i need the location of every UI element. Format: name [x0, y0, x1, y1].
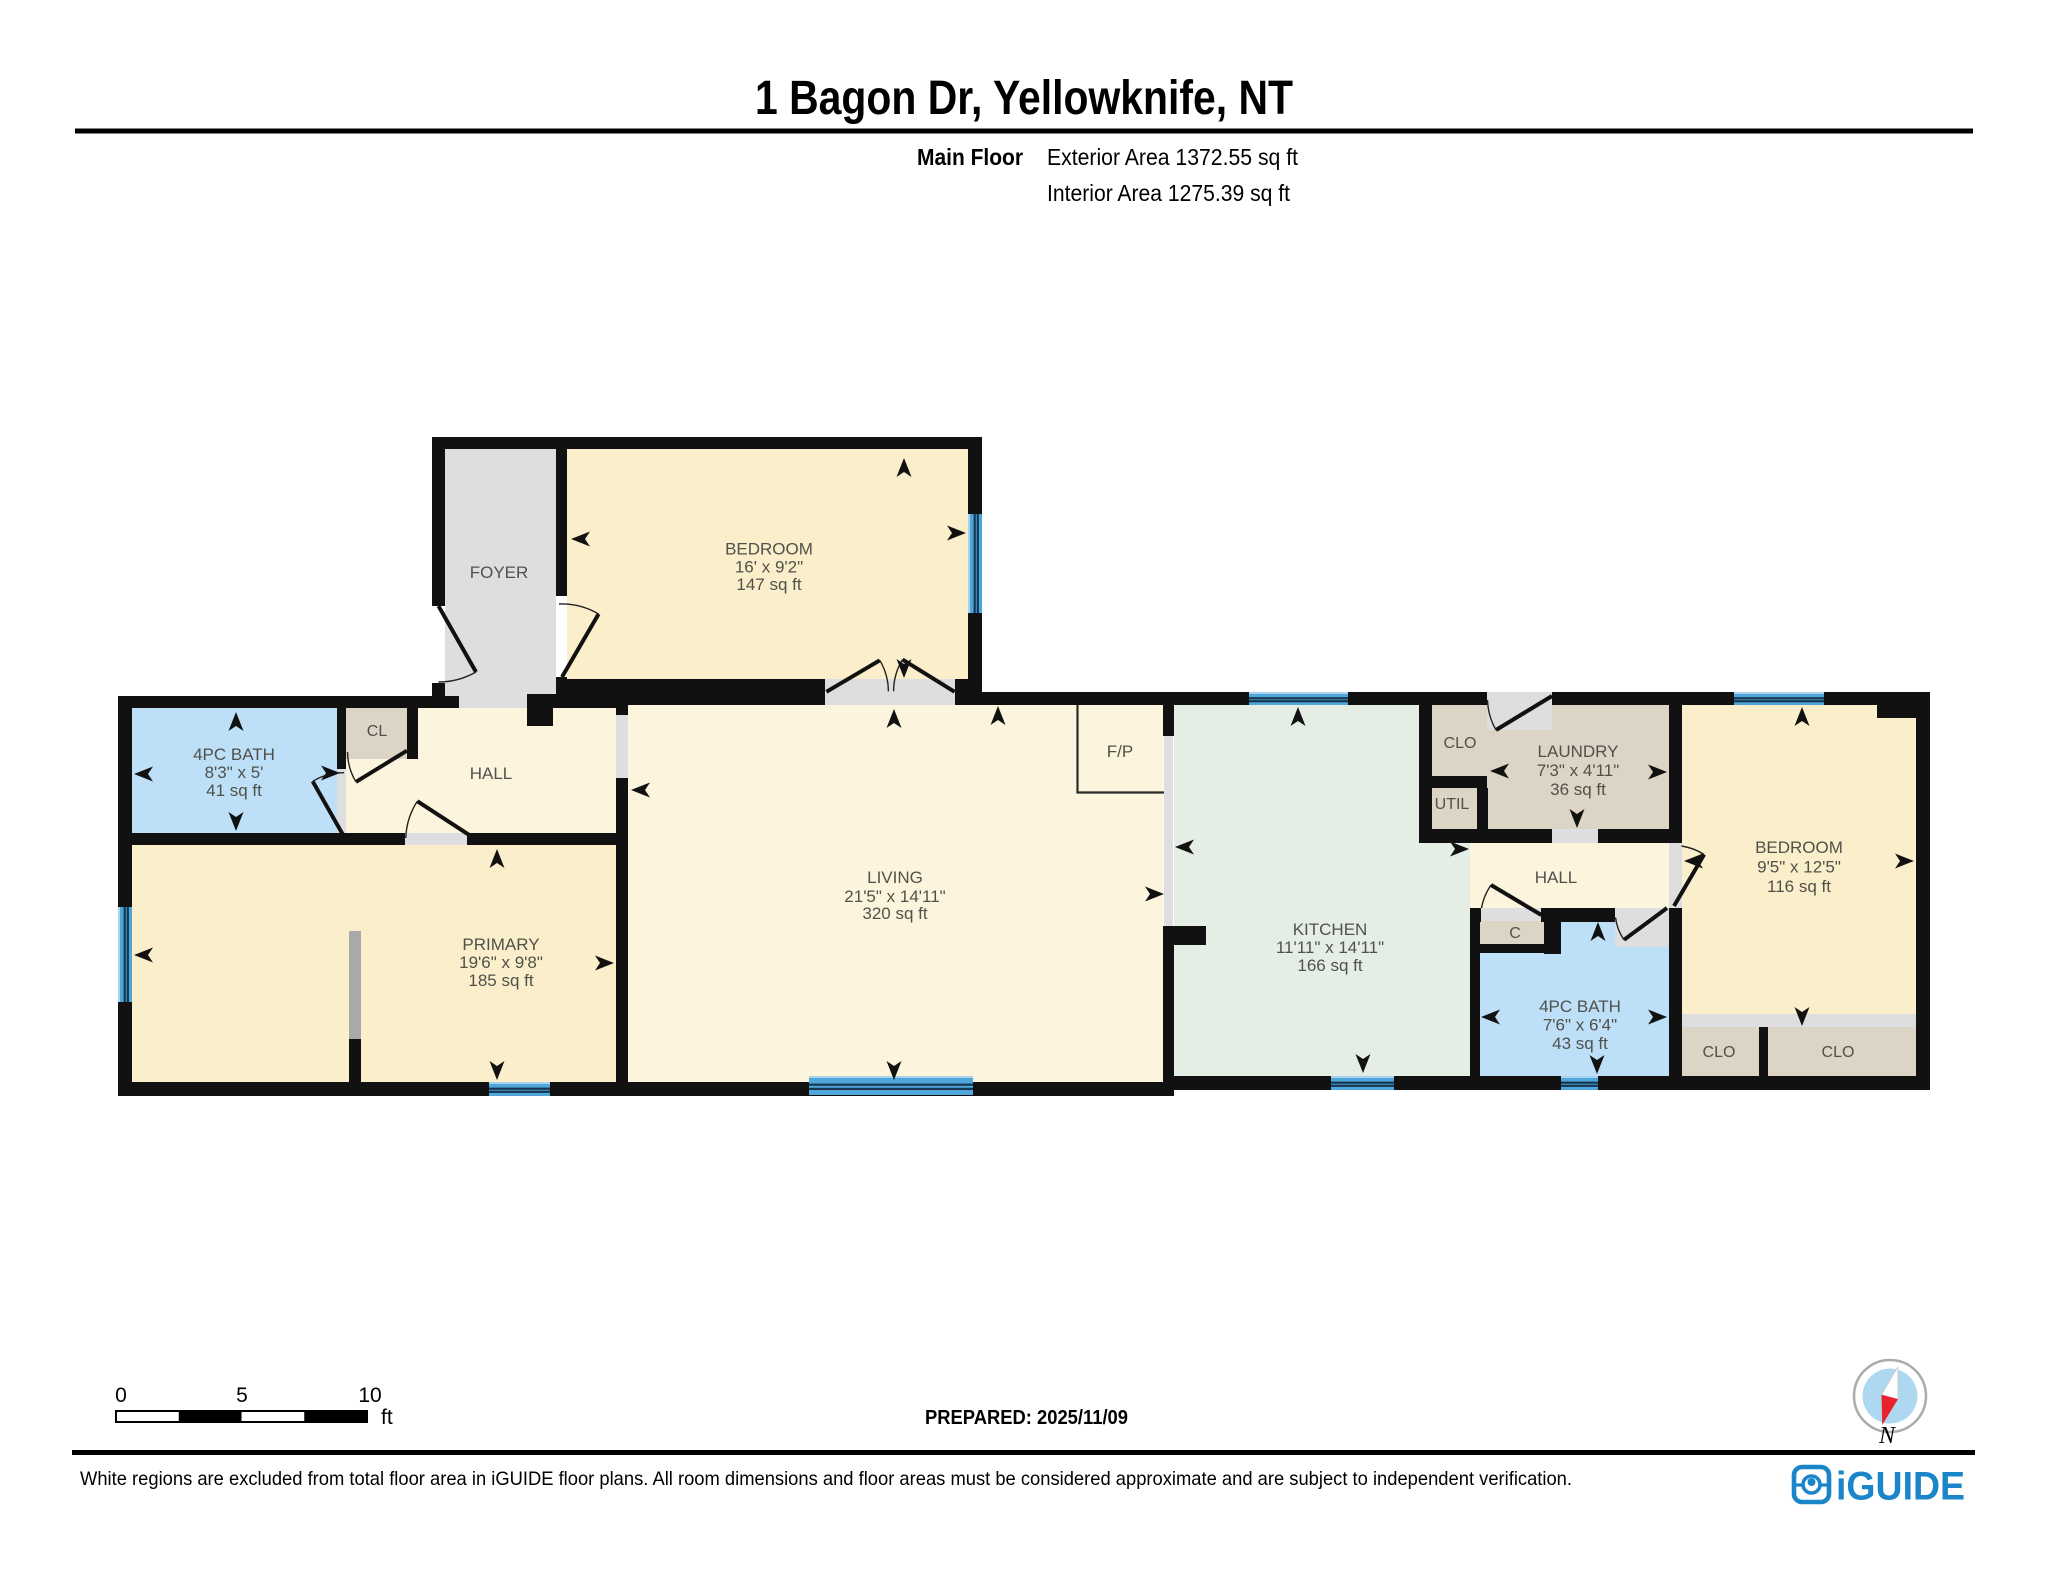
svg-text:4PC BATH: 4PC BATH [1539, 997, 1621, 1016]
svg-text:KITCHEN: KITCHEN [1293, 920, 1368, 939]
svg-text:LAUNDRY: LAUNDRY [1538, 742, 1619, 761]
svg-text:CLO: CLO [1822, 1044, 1855, 1061]
svg-text:BEDROOM: BEDROOM [725, 540, 813, 559]
svg-text:C: C [1509, 925, 1521, 942]
svg-text:0: 0 [115, 1384, 127, 1407]
svg-text:Exterior Area 1372.55 sq ft: Exterior Area 1372.55 sq ft [1047, 144, 1299, 170]
svg-text:FOYER: FOYER [470, 563, 529, 582]
svg-text:185 sq ft: 185 sq ft [468, 971, 533, 990]
svg-text:10: 10 [358, 1384, 381, 1407]
svg-text:PREPARED: 2025/11/09: PREPARED: 2025/11/09 [925, 1407, 1128, 1429]
svg-text:9'5" x 12'5": 9'5" x 12'5" [1757, 858, 1841, 877]
svg-text:4PC BATH: 4PC BATH [193, 745, 275, 764]
svg-text:Main Floor: Main Floor [917, 144, 1023, 170]
svg-text:N: N [1878, 1423, 1897, 1449]
svg-text:166 sq ft: 166 sq ft [1297, 956, 1362, 975]
svg-text:7'3" x 4'11": 7'3" x 4'11" [1537, 761, 1620, 780]
svg-text:CL: CL [367, 723, 388, 740]
svg-text:8'3" x 5': 8'3" x 5' [205, 763, 264, 782]
svg-text:iGUIDE: iGUIDE [1836, 1465, 1965, 1509]
svg-text:White regions are excluded fro: White regions are excluded from total fl… [80, 1468, 1572, 1490]
svg-text:HALL: HALL [1535, 868, 1578, 887]
svg-text:147 sq ft: 147 sq ft [736, 575, 801, 594]
svg-text:F/P: F/P [1107, 742, 1133, 761]
svg-text:CLO: CLO [1444, 735, 1477, 752]
svg-text:BEDROOM: BEDROOM [1755, 838, 1843, 857]
svg-text:CLO: CLO [1703, 1044, 1736, 1061]
svg-text:1 Bagon Dr, Yellowknife, NT: 1 Bagon Dr, Yellowknife, NT [755, 72, 1293, 125]
svg-text:PRIMARY: PRIMARY [462, 935, 539, 954]
svg-text:UTIL: UTIL [1435, 796, 1470, 813]
svg-text:116 sq ft: 116 sq ft [1767, 877, 1831, 896]
svg-text:43 sq ft: 43 sq ft [1552, 1034, 1608, 1053]
svg-text:HALL: HALL [470, 764, 513, 783]
svg-text:LIVING: LIVING [867, 868, 923, 887]
svg-text:36 sq ft: 36 sq ft [1550, 780, 1606, 799]
svg-text:11'11" x 14'11": 11'11" x 14'11" [1276, 938, 1384, 957]
svg-text:41 sq ft: 41 sq ft [206, 781, 262, 800]
svg-text:5: 5 [236, 1384, 248, 1407]
svg-text:320 sq ft: 320 sq ft [862, 904, 927, 923]
svg-text:Interior Area 1275.39 sq ft: Interior Area 1275.39 sq ft [1047, 180, 1291, 206]
svg-text:ft: ft [381, 1406, 393, 1429]
svg-text:7'6" x 6'4": 7'6" x 6'4" [1543, 1016, 1617, 1035]
svg-text:16' x 9'2": 16' x 9'2" [735, 558, 803, 577]
svg-text:19'6" x 9'8": 19'6" x 9'8" [459, 953, 543, 972]
